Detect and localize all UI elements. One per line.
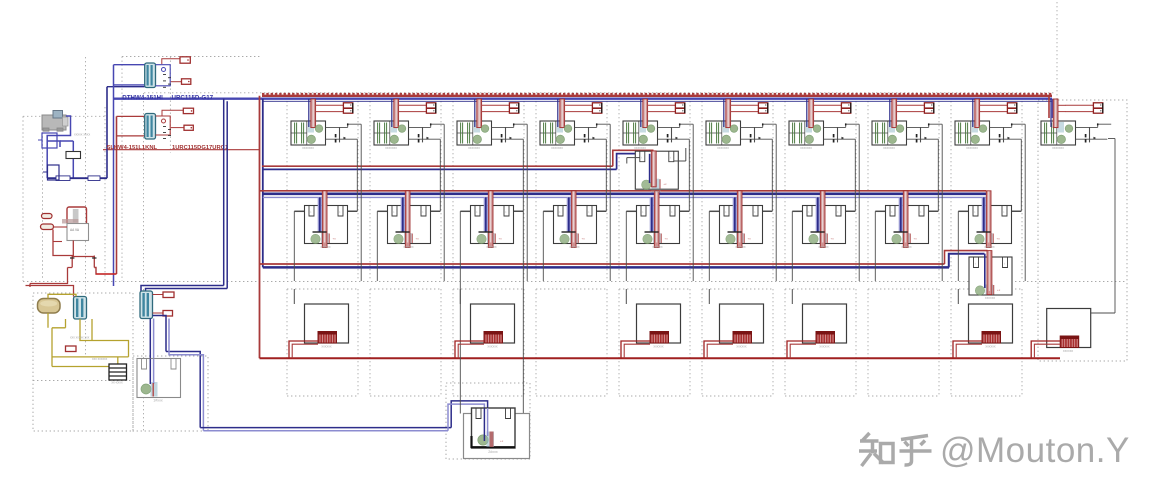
svg-text:xxxxxxx: xxxxxxx <box>800 146 812 150</box>
svg-text:+x: +x <box>663 182 667 186</box>
svg-text:xxxxxx: xxxxxx <box>320 245 330 249</box>
svg-text:xxxxxx: xxxxxx <box>736 345 746 349</box>
svg-text:+x: +x <box>665 237 669 241</box>
svg-text:+x: +x <box>914 237 918 241</box>
svg-text:DTHW4-151Hl: DTHW4-151Hl <box>122 94 163 101</box>
svg-text:+x: +x <box>582 237 586 241</box>
svg-text:xx-xxxx: xx-xxxx <box>111 381 123 385</box>
svg-text:xxxxxxx: xxxxxxx <box>385 146 397 150</box>
svg-text:+x: +x <box>500 439 504 443</box>
svg-text:xxx xxxxxx: xxx xxxxxx <box>92 357 108 361</box>
svg-text:t: t <box>670 156 671 160</box>
svg-text:xxxxxxx: xxxxxxx <box>634 146 646 150</box>
svg-text:xxxxxxx: xxxxxxx <box>966 146 978 150</box>
svg-text:xxx xxxxx xxx: xxx xxxxx xxx <box>70 336 90 340</box>
svg-text:xxxxxx: xxxxxx <box>486 245 496 249</box>
svg-text:xxxxxx: xxxxxx <box>985 296 995 300</box>
svg-text:xxxxxx: xxxxxx <box>1063 349 1073 353</box>
svg-text:xxxxxxx: xxxxxxx <box>302 146 314 150</box>
svg-text:xxxxxx: xxxxxx <box>818 245 828 249</box>
svg-text:xxxxxx: xxxxxx <box>321 345 331 349</box>
svg-text:+x: +x <box>997 288 1001 292</box>
svg-text:xxxxxx: xxxxxx <box>487 345 497 349</box>
svg-text:xxxxxx: xxxxxx <box>403 245 413 249</box>
svg-text:+x: +x <box>831 237 835 241</box>
svg-text:+x: +x <box>748 237 752 241</box>
svg-text:xxxxxxx: xxxxxxx <box>551 146 563 150</box>
svg-text:1#xxx: 1#xxx <box>153 399 163 403</box>
svg-text:1URC115DG17URC1: 1URC115DG17URC1 <box>172 145 229 151</box>
svg-text:+x: +x <box>416 237 420 241</box>
svg-text:+x: +x <box>997 237 1001 241</box>
svg-text:SLHW4-151L1KNL: SLHW4-151L1KNL <box>107 145 158 151</box>
svg-text:xxxxxxx: xxxxxxx <box>717 146 729 150</box>
svg-text:URC115D-G17: URC115D-G17 <box>172 94 214 101</box>
svg-text:xxxxxx: xxxxxx <box>651 190 661 194</box>
svg-text:AA VA: AA VA <box>70 228 80 232</box>
svg-text:xxxxx xxxx: xxxxx xxxx <box>74 132 91 136</box>
svg-text:+x: +x <box>499 237 503 241</box>
svg-text:xxxxxx: xxxxxx <box>569 245 579 249</box>
svg-text:2#xxx: 2#xxx <box>488 450 498 454</box>
svg-text:xxxxxx: xxxxxx <box>985 345 995 349</box>
svg-text:xxxxxxx: xxxxxxx <box>1052 146 1064 150</box>
svg-text:xxxxxx: xxxxxx <box>901 245 911 249</box>
svg-text:xxxxxx: xxxxxx <box>653 345 663 349</box>
svg-text:xxxxxxx: xxxxxxx <box>883 146 895 150</box>
svg-text:xxxxxxx: xxxxxxx <box>468 146 480 150</box>
svg-text:xxxxxx: xxxxxx <box>652 245 662 249</box>
svg-text:xxxxxx: xxxxxx <box>819 345 829 349</box>
svg-text:xxxxxx: xxxxxx <box>735 245 745 249</box>
svg-text:@Mouton.Y: @Mouton.Y <box>940 431 1130 470</box>
svg-text:xxxxxx: xxxxxx <box>984 245 994 249</box>
svg-text:+x: +x <box>333 237 337 241</box>
svg-text:t: t <box>641 156 642 160</box>
